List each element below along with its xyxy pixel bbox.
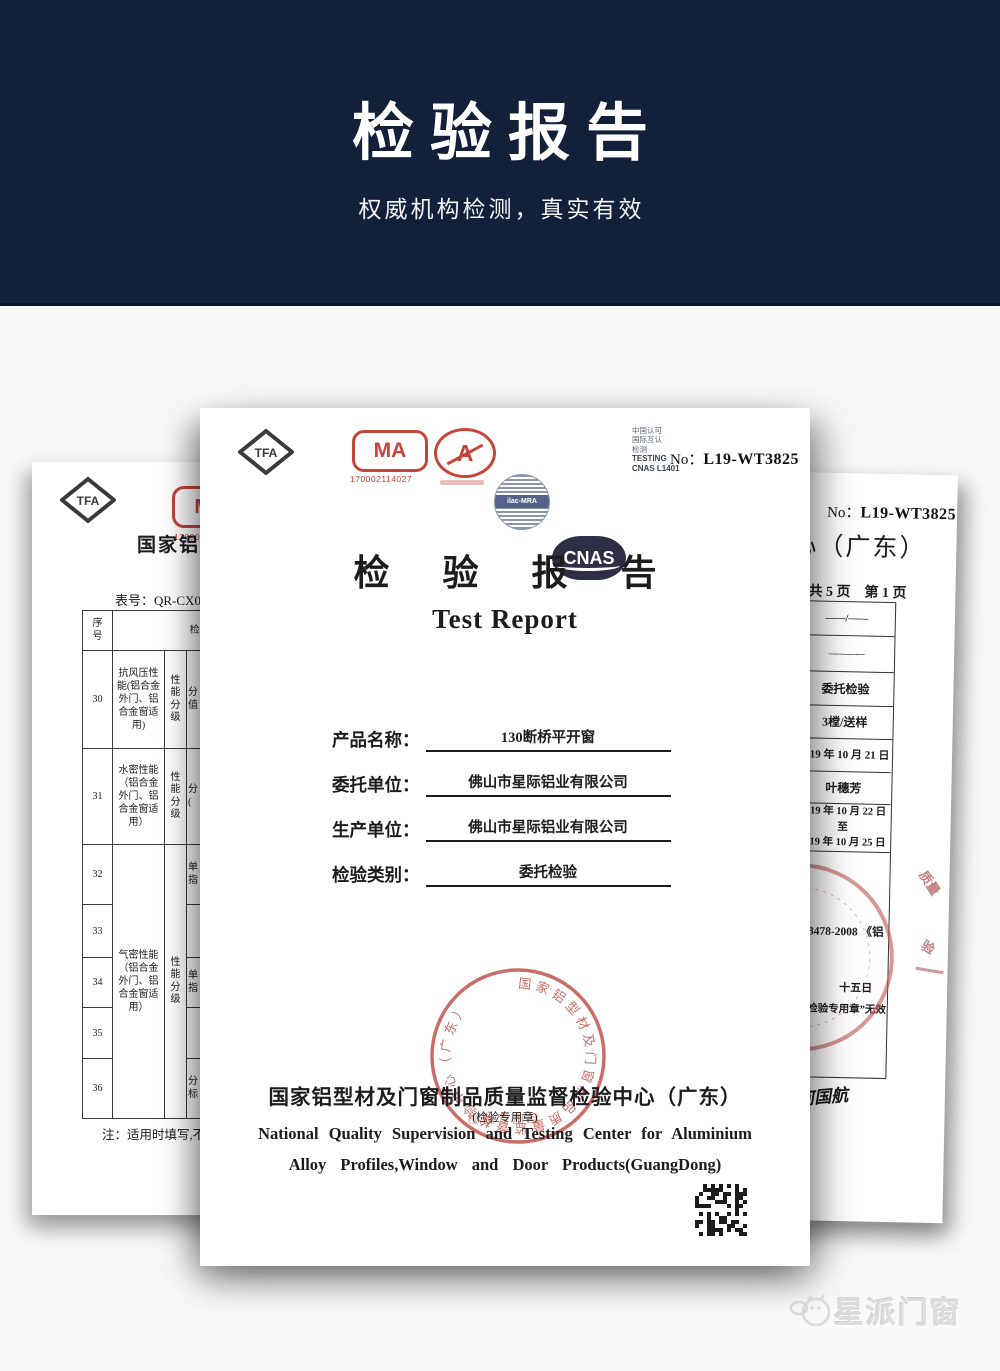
page: 检验报告 权威机构检测，真实有效 TFA MA 17000 国家铝型 表号：QR… [0, 0, 1000, 1371]
cell: 2019 年 10 月 21 日 [796, 738, 893, 773]
tfa-logo-icon: TFA [58, 476, 118, 524]
qr-code [694, 1184, 748, 1236]
cal-number-smudge [440, 480, 484, 485]
doc-title-cn: 检 验 报 告 [200, 544, 810, 596]
cma-number: 170002114027 [350, 474, 412, 484]
issuer-name-en-1: National Quality Supervision and Testing… [200, 1124, 810, 1144]
stamp-fragment: 质量 [915, 866, 945, 898]
issuer-name-cn: 国家铝型材及门窗制品质量监督检验中心（广东） [200, 1080, 810, 1110]
right-report-no: No：L19-WT3825 [827, 501, 956, 525]
cma-logo-icon: MA [352, 430, 428, 472]
left-doc-note: 注：适用时填写,不 [102, 1124, 205, 1143]
svg-text:TFA: TFA [255, 446, 278, 460]
page-subtitle: 权威机构检测，真实有效 [0, 190, 1000, 224]
cell: ——/—— [799, 601, 896, 637]
cal-logo-icon: A [434, 428, 496, 478]
col-header-no: 序号 [83, 611, 113, 651]
ilac-mra-logo-icon: ilac-MRA [494, 474, 550, 530]
field-test-type: 检验类别：委托检验 [332, 861, 671, 901]
right-heading-partial: 心（广东） [791, 526, 927, 565]
right-pages: 共 5 页 第 1 页 [808, 580, 906, 602]
page-title: 检验报告 [0, 82, 1000, 172]
header-banner: 检验报告 权威机构检测，真实有效 [0, 0, 1000, 306]
stamp-fragment: 验 [918, 935, 939, 958]
brand-mascot-icon [788, 1290, 834, 1330]
brand-name: 星派门窗 [834, 1288, 962, 1332]
svg-text:TFA: TFA [77, 494, 100, 508]
field-product-name: 产品名称：130断桥平开窗 [332, 726, 671, 766]
field-client: 委托单位：佛山市星际铝业有限公司 [332, 771, 671, 811]
brand-watermark: 星派门窗 [788, 1288, 962, 1332]
cell: 委托检验 [797, 671, 894, 707]
cell: 3樘/送样 [796, 705, 893, 740]
issuer-name-en-2: Alloy Profiles,Window and Door Products(… [200, 1155, 810, 1175]
stamp-fragment-line [916, 967, 944, 974]
seal-note: (检验专用章) [200, 1109, 810, 1125]
field-manufacturer: 生产单位：佛山市星际铝业有限公司 [332, 816, 671, 856]
cell: ————— [798, 635, 895, 673]
report-no: No：L19-WT3825 [670, 448, 799, 469]
doc-title-en: Test Report [200, 604, 810, 635]
certificate-center: TFA MA 170002114027 A ilac-MRA CNAS 中国认可… [200, 408, 810, 1266]
tfa-logo-icon: TFA [236, 428, 296, 476]
